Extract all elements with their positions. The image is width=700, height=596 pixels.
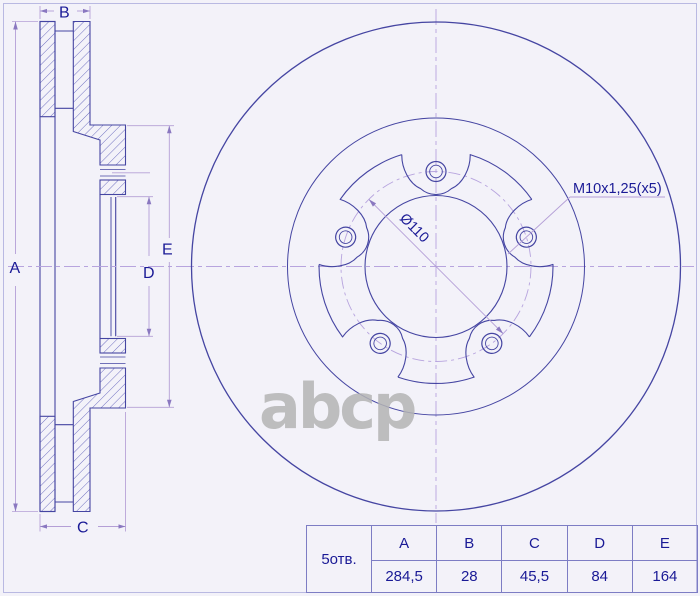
spec-val-d: 84 — [567, 561, 632, 593]
spec-val-c: 45,5 — [502, 561, 567, 593]
dimension-a-label: A — [10, 260, 21, 277]
spec-col-e: E — [632, 526, 697, 561]
spec-col-a: A — [372, 526, 437, 561]
spec-val-e: 164 — [632, 561, 697, 593]
outboard-plate-hatch-top — [40, 22, 55, 117]
spec-col-d: D — [567, 526, 632, 561]
hat-block-lower — [100, 339, 126, 354]
spec-col-b: B — [437, 526, 502, 561]
spec-table: 5отв. A B C D E 284,5 28 45,5 84 164 — [306, 525, 698, 593]
dimension-b-label: B — [59, 5, 70, 22]
dimension-d-label: D — [143, 265, 155, 282]
spec-col-c: C — [502, 526, 567, 561]
brake-disc-drawing: A B C D E — [0, 0, 700, 596]
inboard-plate-hat-upper — [73, 22, 125, 166]
pcd-label: Ø110 — [396, 211, 432, 247]
front-view: Ø110 M10x1,25(x5) — [178, 9, 694, 523]
dimension-c-label: C — [77, 520, 89, 537]
watermark-text: abcp — [259, 370, 415, 443]
dimension-lines: A B C D E — [10, 5, 175, 537]
thread-leader-line — [508, 197, 570, 254]
spec-val-a: 284,5 — [372, 561, 437, 593]
thread-label: M10x1,25(x5) — [573, 181, 662, 197]
inboard-plate-hat-lower — [73, 368, 125, 512]
hat-block-upper — [100, 180, 126, 195]
outboard-plate-hatch-bottom — [40, 416, 55, 511]
spec-val-b: 28 — [437, 561, 502, 593]
dimension-e-label: E — [162, 242, 173, 259]
spec-holes-cell: 5отв. — [307, 526, 372, 593]
technical-drawing-canvas: A B C D E — [0, 0, 700, 596]
drawing-frame — [4, 4, 697, 593]
